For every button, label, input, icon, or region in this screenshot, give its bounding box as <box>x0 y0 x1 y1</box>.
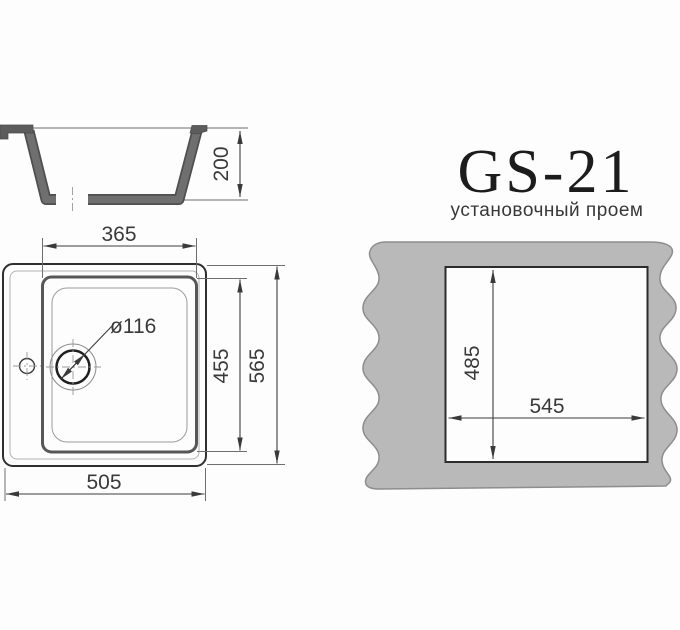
installation-diagram: 485 545 <box>363 242 677 489</box>
model-title: GS-21 <box>458 138 635 206</box>
cutout-width-dim-label: 545 <box>529 395 564 418</box>
plan-view: ø116 365 455 565 505 <box>3 223 285 501</box>
right-rim-lip <box>190 126 207 135</box>
sink-profile-outline <box>29 131 197 200</box>
drain-gap <box>56 193 88 207</box>
cutout-depth-dim-label: 485 <box>461 345 484 380</box>
title-block: GS-21 установочный проем <box>451 138 644 221</box>
drawing-svg: 200 ø116 365 455 <box>0 0 680 630</box>
height-dim-label: 200 <box>210 146 233 181</box>
model-subtitle: установочный проем <box>451 200 644 221</box>
drain-diameter-label: ø116 <box>110 315 156 338</box>
side-view: 200 <box>0 125 248 214</box>
technical-drawing: 200 ø116 365 455 <box>0 0 680 630</box>
overall-depth-dim-label: 565 <box>246 348 269 383</box>
bowl-depth-dim-label: 455 <box>210 348 233 383</box>
sink-profile-body <box>29 131 197 200</box>
bowl-width-dim-label: 365 <box>101 223 136 246</box>
overall-width-dim-label: 505 <box>86 471 121 494</box>
